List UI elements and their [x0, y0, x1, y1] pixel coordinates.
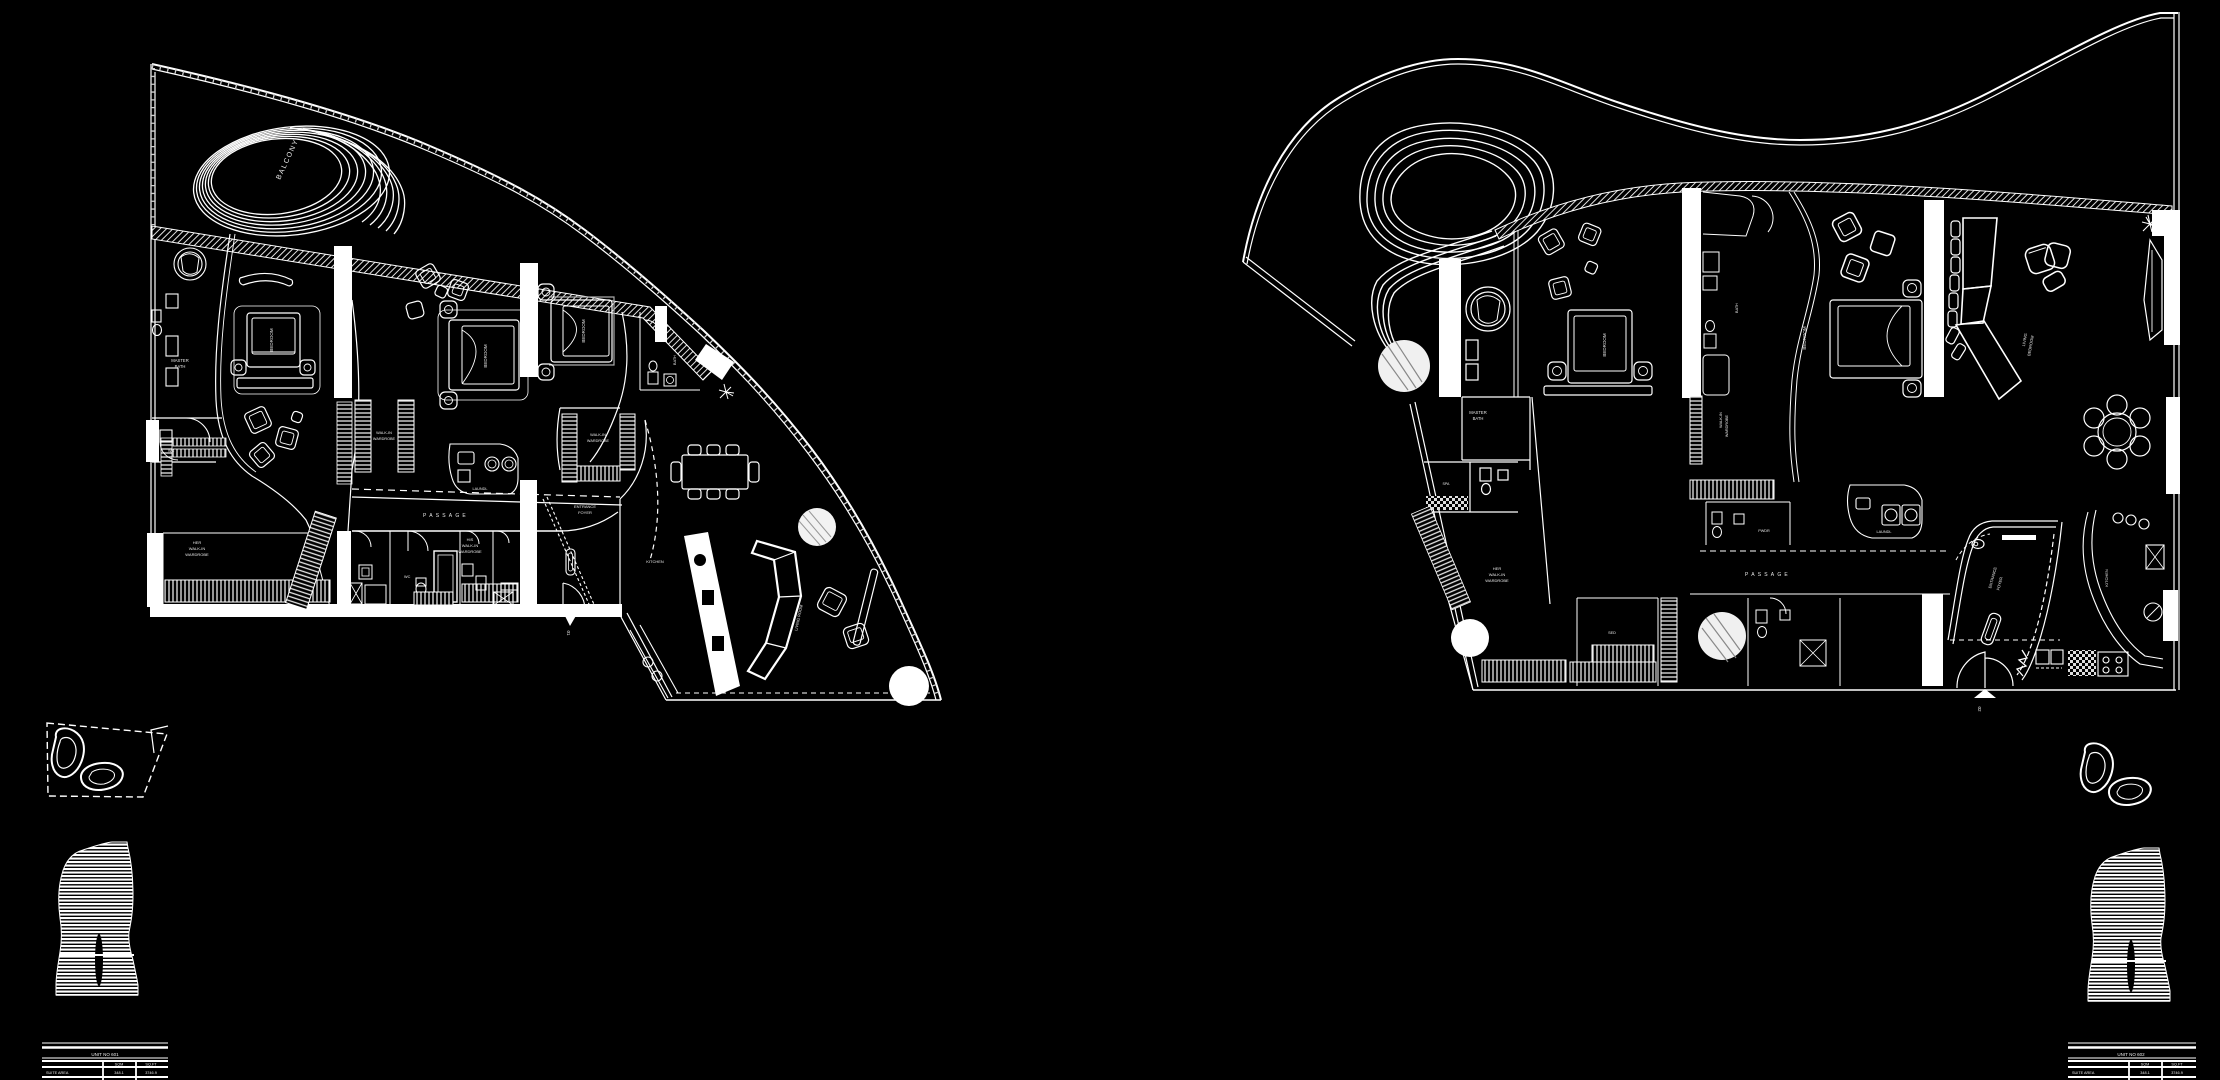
svg-text:3746.9: 3746.9 — [145, 1071, 157, 1075]
svg-text:HER: HER — [1493, 566, 1502, 571]
svg-text:PASSAGE: PASSAGE — [423, 513, 469, 519]
svg-text:WALK-IN: WALK-IN — [590, 433, 606, 437]
svg-text:WALK-IN: WALK-IN — [462, 543, 479, 548]
svg-text:WARDROBE: WARDROBE — [185, 552, 209, 557]
svg-text:BATH: BATH — [673, 355, 677, 365]
svg-text:348.1: 348.1 — [2140, 1071, 2150, 1075]
svg-text:HIS: HIS — [467, 537, 474, 542]
svg-text:FOYER: FOYER — [578, 510, 592, 515]
svg-text:ENTRANCE: ENTRANCE — [574, 504, 596, 509]
svg-text:HER: HER — [193, 540, 202, 545]
svg-text:UNIT NO 602: UNIT NO 602 — [2117, 1052, 2145, 1057]
svg-text:SPA: SPA — [1443, 482, 1451, 486]
svg-text:02: 02 — [1977, 706, 1982, 712]
svg-text:3746.9: 3746.9 — [2171, 1071, 2183, 1075]
svg-text:KITCHEN: KITCHEN — [2104, 569, 2109, 587]
svg-text:SQM: SQM — [2141, 1063, 2150, 1067]
svg-text:PWDR: PWDR — [1758, 529, 1770, 533]
svg-text:WALK-IN: WALK-IN — [1719, 412, 1723, 428]
svg-text:WARDROBE: WARDROBE — [373, 437, 396, 441]
svg-text:SUITE AREA: SUITE AREA — [46, 1071, 69, 1075]
svg-text:LAUNDL: LAUNDL — [1877, 530, 1892, 534]
svg-text:WC: WC — [168, 449, 175, 453]
svg-text:BEDROOM: BEDROOM — [1602, 333, 1607, 357]
svg-text:348.1: 348.1 — [114, 1071, 124, 1075]
svg-text:SQ.FT: SQ.FT — [145, 1063, 157, 1067]
svg-text:WARDROBE: WARDROBE — [587, 439, 610, 443]
svg-text:BATH: BATH — [175, 364, 186, 369]
svg-text:SED: SED — [1608, 631, 1616, 635]
svg-text:SUITE AREA: SUITE AREA — [2072, 1071, 2095, 1075]
svg-text:BEDROOM: BEDROOM — [581, 319, 586, 343]
svg-text:01: 01 — [566, 630, 571, 636]
svg-text:SQM: SQM — [115, 1063, 124, 1067]
svg-text:UNIT NO 601: UNIT NO 601 — [91, 1052, 119, 1057]
svg-text:MASTER: MASTER — [171, 358, 188, 363]
svg-text:SQ.FT: SQ.FT — [2171, 1063, 2183, 1067]
svg-text:WALK-IN: WALK-IN — [189, 546, 206, 551]
svg-text:PASSAGE: PASSAGE — [1745, 572, 1791, 578]
svg-text:BATH: BATH — [1473, 416, 1484, 421]
svg-text:WARDROBE: WARDROBE — [1725, 414, 1729, 437]
svg-text:WALK-IN: WALK-IN — [1489, 572, 1506, 577]
svg-text:WC: WC — [404, 575, 411, 579]
svg-text:WARDROBE: WARDROBE — [1485, 578, 1509, 583]
svg-text:MASTER: MASTER — [1469, 410, 1486, 415]
svg-text:KITCHEN: KITCHEN — [646, 559, 664, 564]
svg-text:LAUNDL: LAUNDL — [473, 487, 488, 491]
svg-text:BEDROOM: BEDROOM — [483, 344, 488, 368]
svg-text:WARDROBE: WARDROBE — [458, 549, 482, 554]
svg-text:BEDROOM: BEDROOM — [1802, 326, 1807, 350]
svg-text:WALK-IN: WALK-IN — [376, 431, 392, 435]
svg-text:BEDROOM: BEDROOM — [269, 328, 274, 352]
svg-text:BATH: BATH — [1735, 303, 1739, 313]
